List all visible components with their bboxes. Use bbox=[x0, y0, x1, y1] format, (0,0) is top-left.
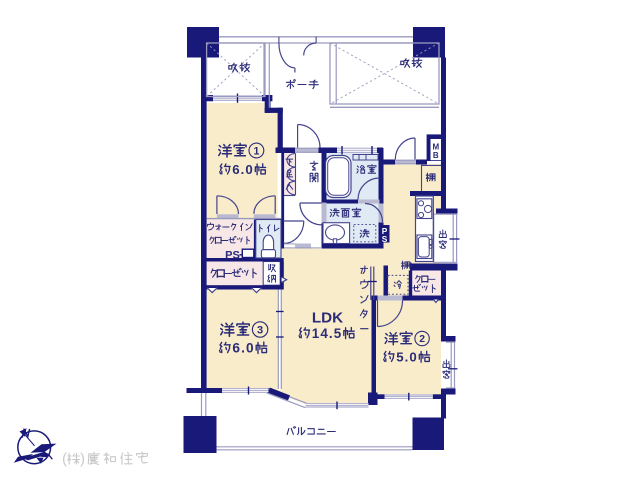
svg-text:0: 0 bbox=[245, 162, 252, 177]
svg-text:.: . bbox=[405, 349, 409, 364]
svg-text:6: 6 bbox=[232, 162, 239, 177]
svg-text:): ) bbox=[80, 452, 85, 468]
svg-text:4: 4 bbox=[320, 326, 328, 341]
svg-text:6: 6 bbox=[232, 341, 240, 356]
svg-text:1: 1 bbox=[253, 145, 259, 157]
svg-text:ロ: ロ bbox=[215, 268, 226, 280]
svg-text:LDK: LDK bbox=[312, 310, 343, 327]
svg-text:(: ( bbox=[62, 452, 67, 468]
svg-text:M: M bbox=[432, 142, 439, 151]
svg-text:S: S bbox=[382, 234, 388, 244]
svg-text:.: . bbox=[241, 341, 245, 356]
svg-text:1: 1 bbox=[312, 326, 320, 341]
svg-text:0: 0 bbox=[246, 341, 254, 356]
svg-text:.: . bbox=[329, 326, 333, 341]
svg-text:.: . bbox=[241, 162, 245, 177]
svg-text:B: B bbox=[433, 151, 439, 160]
svg-text:0: 0 bbox=[409, 349, 416, 364]
svg-text:PS: PS bbox=[225, 249, 240, 261]
svg-text:2: 2 bbox=[419, 334, 425, 345]
svg-text:5: 5 bbox=[334, 326, 342, 341]
svg-text:3: 3 bbox=[257, 325, 263, 337]
svg-text:ロ: ロ bbox=[420, 274, 430, 285]
svg-text:5: 5 bbox=[396, 349, 403, 364]
